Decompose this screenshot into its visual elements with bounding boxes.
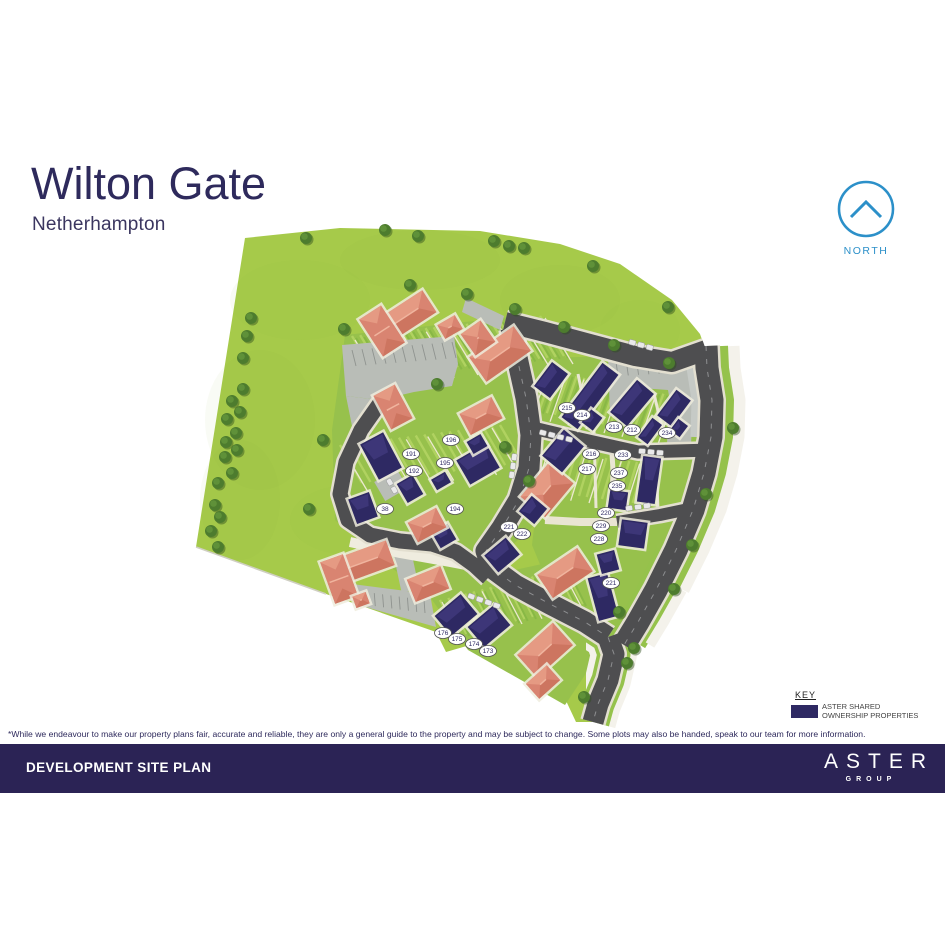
svg-text:38: 38: [381, 506, 389, 513]
svg-text:221: 221: [504, 524, 515, 531]
svg-text:216: 216: [586, 451, 597, 458]
svg-text:229: 229: [596, 523, 607, 530]
svg-text:221: 221: [606, 580, 617, 587]
svg-text:217: 217: [582, 466, 593, 473]
svg-text:220: 220: [601, 510, 612, 517]
svg-text:222: 222: [517, 531, 528, 538]
svg-text:233: 233: [618, 452, 629, 459]
svg-text:195: 195: [440, 460, 451, 467]
svg-text:228: 228: [594, 536, 605, 543]
svg-text:237: 237: [614, 470, 625, 477]
svg-text:214: 214: [577, 412, 588, 419]
svg-text:213: 213: [609, 424, 620, 431]
svg-text:173: 173: [483, 648, 494, 655]
svg-text:234: 234: [662, 430, 673, 437]
svg-text:196: 196: [446, 437, 457, 444]
svg-text:235: 235: [612, 483, 623, 490]
svg-text:176: 176: [438, 630, 449, 637]
svg-text:192: 192: [409, 468, 420, 475]
svg-text:194: 194: [450, 506, 461, 513]
svg-text:215: 215: [562, 405, 573, 412]
svg-text:212: 212: [627, 427, 638, 434]
svg-text:174: 174: [469, 641, 480, 648]
svg-text:175: 175: [452, 636, 463, 643]
svg-text:191: 191: [406, 451, 417, 458]
